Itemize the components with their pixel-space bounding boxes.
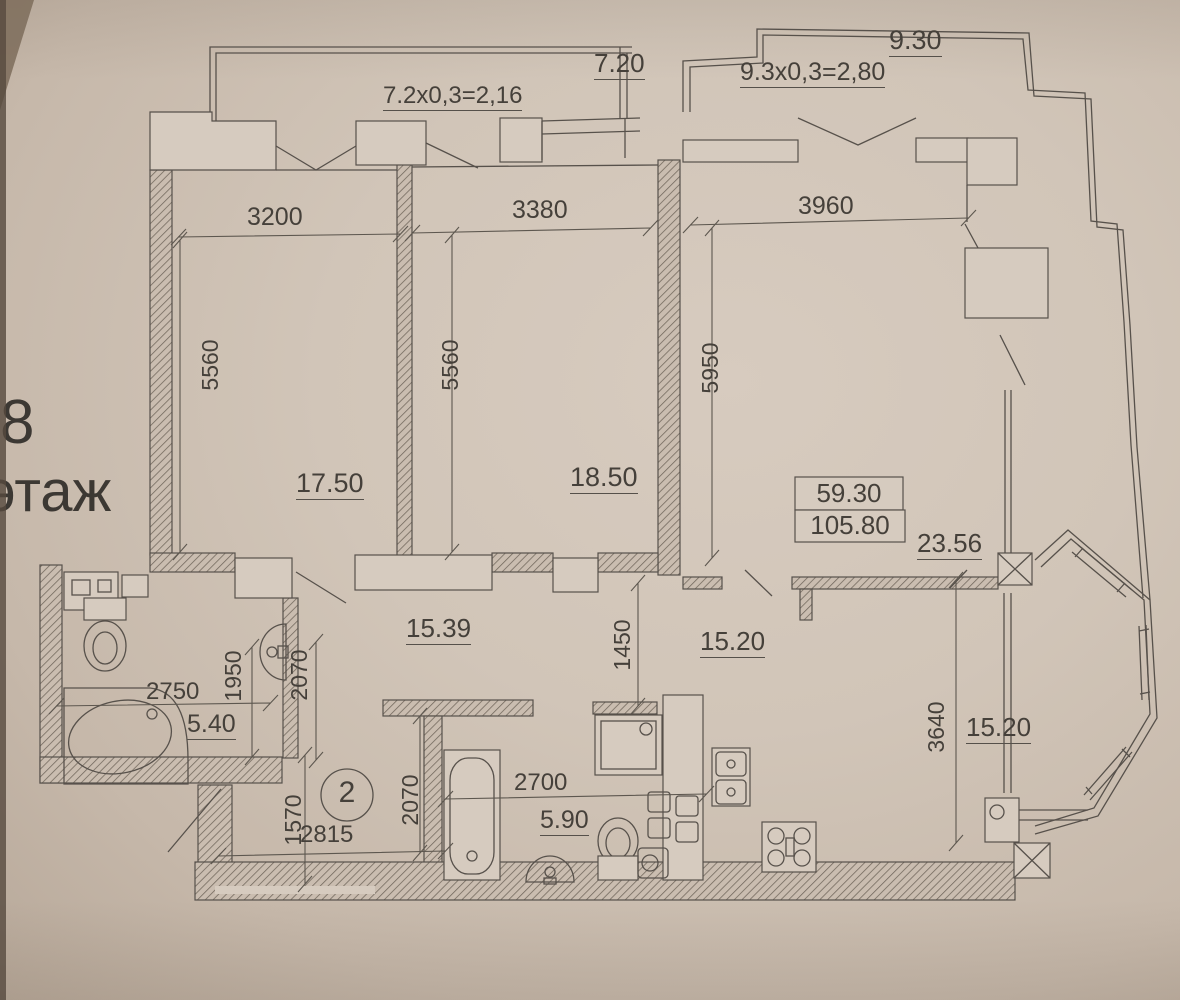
door-leaf xyxy=(745,570,772,596)
room1-area-label: 17.50 xyxy=(296,469,364,500)
dim-3960-label: 3960 xyxy=(798,193,854,219)
dim-2070-tub-label: 2070 xyxy=(398,770,422,830)
kitchen-area-label: 15.20 xyxy=(700,628,765,658)
dim-5560-room1-label: 5560 xyxy=(198,330,222,400)
balcony-door-left xyxy=(276,146,356,170)
floorplan-drawing xyxy=(0,0,1180,1000)
apartment-number: 2 xyxy=(332,777,362,809)
dim-1450-label: 1450 xyxy=(610,610,634,680)
dim-5950-label: 5950 xyxy=(698,333,722,403)
total-area-label: 105.80 xyxy=(795,510,905,542)
floorplan-photo: 8 этаж 7.20 7.2x0,3=2,16 9.30 9.3x0,3=2,… xyxy=(0,0,1180,1000)
dim-2070-bath-label: 2070 xyxy=(287,645,311,705)
living-right-wall xyxy=(965,185,1048,585)
hall-area-label: 15.39 xyxy=(406,615,471,645)
sink xyxy=(260,624,286,680)
floor-word: этаж xyxy=(0,462,111,523)
balcony-right-area-label: 9.30 xyxy=(889,26,942,57)
dim-3380-label: 3380 xyxy=(512,197,568,223)
stove xyxy=(762,822,816,872)
summer-area-label: 23.56 xyxy=(917,530,982,560)
toilet-tank xyxy=(84,598,126,620)
door-leaf xyxy=(426,143,478,168)
shower-tray xyxy=(595,715,662,775)
balcony-right-calc-label: 9.3x0,3=2,80 xyxy=(740,59,885,88)
dim-2700-label: 2700 xyxy=(514,770,567,795)
kitchen-sink xyxy=(712,748,750,806)
balcony-left-area-label: 7.20 xyxy=(594,50,645,80)
balcony-right-outline xyxy=(683,29,1150,600)
dimension-lines xyxy=(49,210,976,892)
living-area-label: 59.30 xyxy=(795,477,903,510)
dim-3640-label: 3640 xyxy=(924,692,948,762)
dim-5560-room2-label: 5560 xyxy=(438,330,462,400)
bay-window-outline xyxy=(1035,530,1157,834)
top-wall xyxy=(150,112,1017,185)
bathroom-area-label: 5.40 xyxy=(187,711,236,740)
photo-page-edge xyxy=(0,0,6,1000)
dim-2750-label: 2750 xyxy=(146,679,199,704)
balcony-left-calc-label: 7.2x0,3=2,16 xyxy=(383,83,522,111)
balcony-door-right xyxy=(798,118,916,145)
wc-fixtures xyxy=(444,695,703,884)
bay-room-area-label: 15.20 xyxy=(966,714,1031,744)
window-room2 xyxy=(542,118,640,160)
toilet-tank xyxy=(598,856,638,880)
radiator xyxy=(985,798,1019,842)
room2-area-label: 18.50 xyxy=(570,463,638,494)
bottom-wall-stripe xyxy=(215,886,375,894)
dim-3200-label: 3200 xyxy=(247,204,303,230)
wc-area-label: 5.90 xyxy=(540,807,589,836)
dim-2815-label: 2815 xyxy=(300,822,353,847)
shaft xyxy=(663,695,703,880)
dim-1950-label: 1950 xyxy=(221,646,245,706)
door-leaf xyxy=(296,572,346,603)
